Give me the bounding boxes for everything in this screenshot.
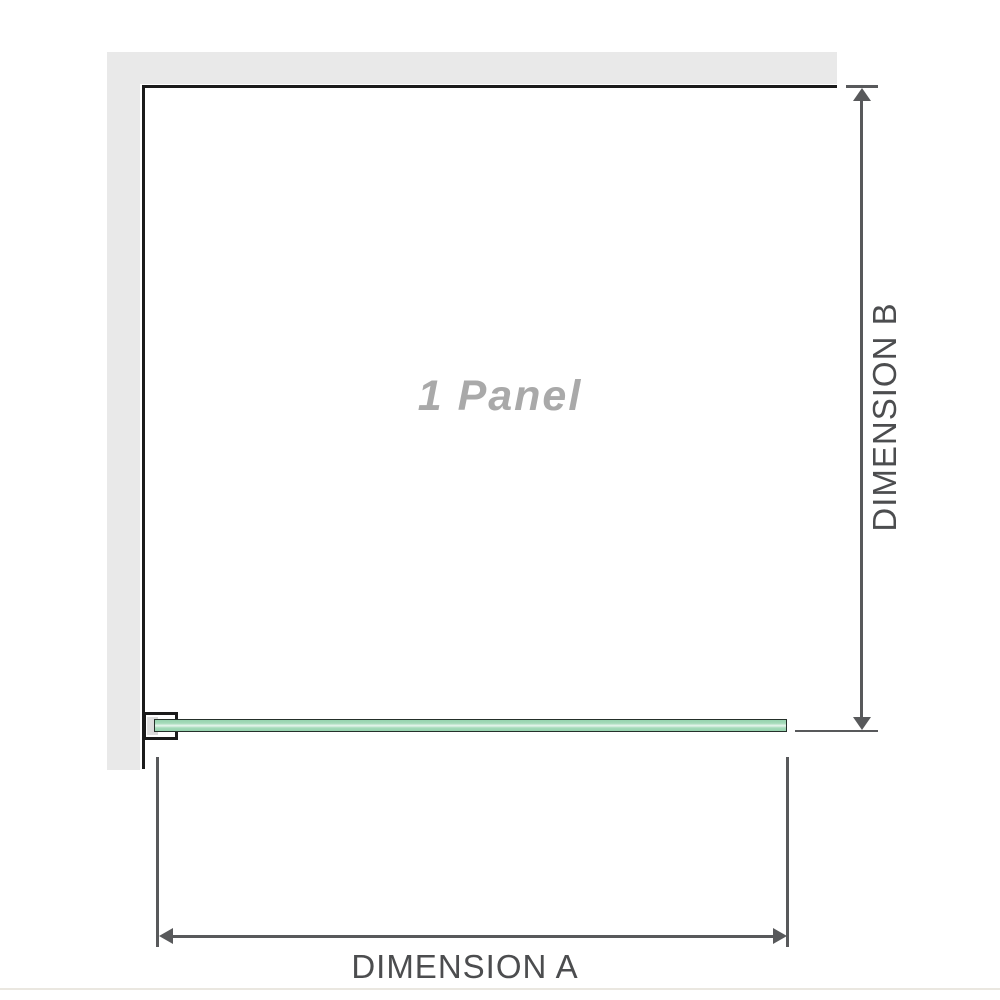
dimension-b-label: DIMENSION B bbox=[866, 267, 904, 567]
dimension-a-line bbox=[171, 935, 773, 938]
page-bottom-divider bbox=[0, 988, 1000, 990]
panel-count-label: 1 Panel bbox=[300, 366, 700, 426]
dimension-a-right-extension bbox=[786, 757, 789, 947]
glass-panel-bar bbox=[154, 719, 787, 732]
shower-panel-diagram: 1 Panel DIMENSION B DIMENSION A bbox=[0, 0, 1000, 1000]
dimension-b-line bbox=[860, 99, 863, 719]
dimension-b-bottom-tick bbox=[795, 730, 878, 733]
arrow-right-icon bbox=[773, 928, 787, 944]
panel-outline-left bbox=[142, 85, 145, 769]
arrow-down-icon bbox=[853, 717, 871, 730]
dimension-a-left-extension bbox=[156, 757, 159, 947]
wall-left-strip bbox=[107, 52, 140, 770]
dimension-a-label: DIMENSION A bbox=[265, 949, 665, 985]
panel-outline-top bbox=[142, 85, 837, 88]
wall-top-strip bbox=[107, 52, 837, 84]
